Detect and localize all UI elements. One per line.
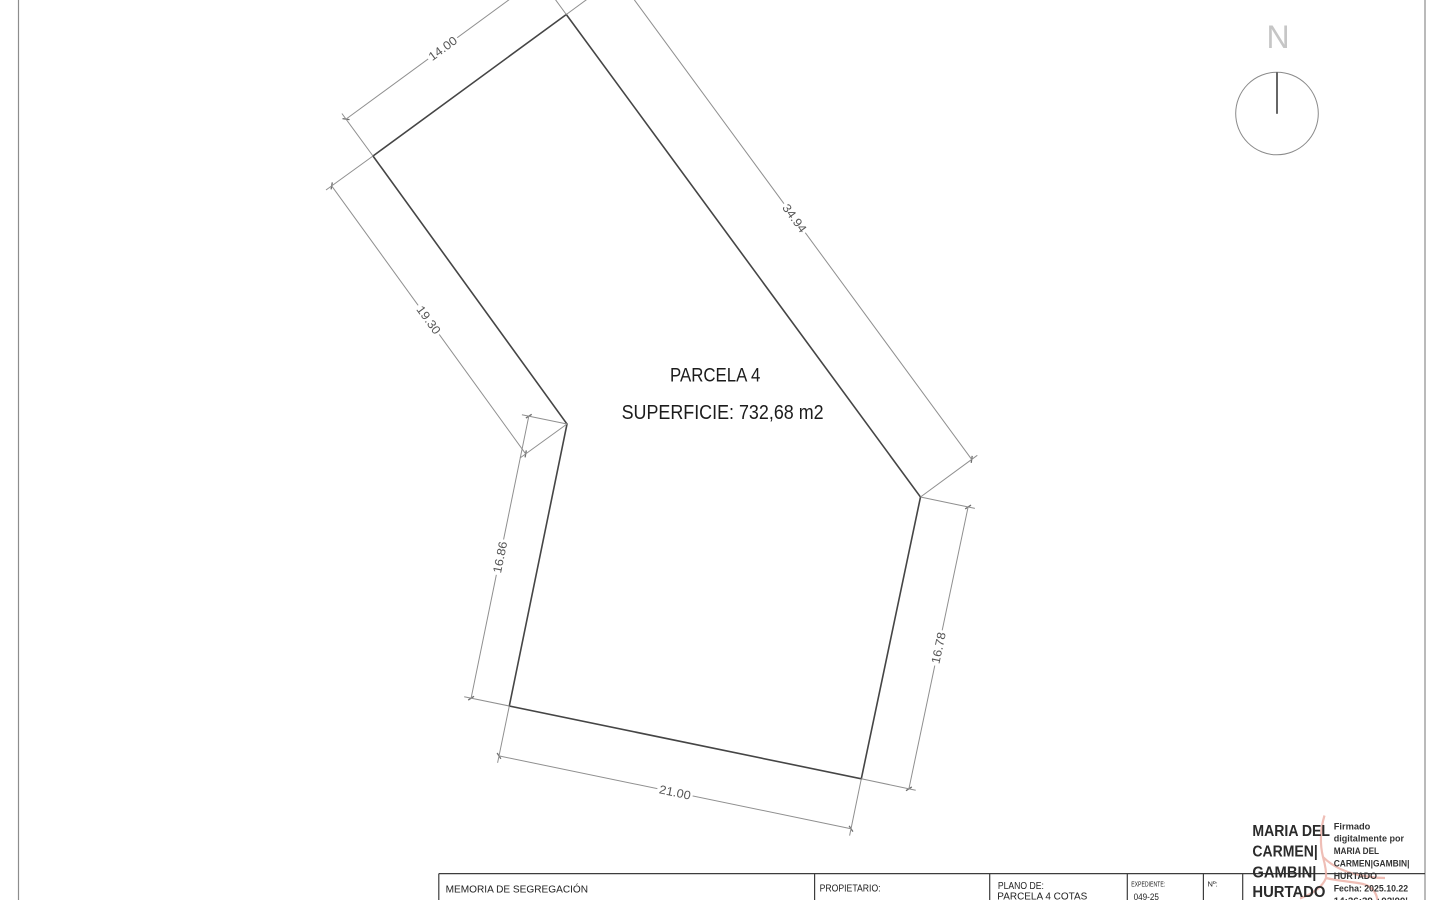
svg-text:MARIA DEL: MARIA DEL — [1334, 846, 1380, 856]
svg-text:16.86: 16.86 — [490, 540, 510, 574]
svg-text:PLANO DE:: PLANO DE: — [998, 881, 1044, 892]
svg-text:14:26:39 +02'00': 14:26:39 +02'00' — [1334, 896, 1408, 900]
svg-text:CARMEN|: CARMEN| — [1252, 843, 1317, 860]
svg-text:049-25: 049-25 — [1134, 892, 1159, 900]
svg-text:PARCELA 4: PARCELA 4 — [670, 365, 761, 387]
svg-text:MARIA DEL: MARIA DEL — [1252, 823, 1330, 840]
svg-text:HURTADO: HURTADO — [1252, 884, 1325, 900]
svg-text:16.78: 16.78 — [929, 631, 949, 666]
svg-text:N: N — [1266, 19, 1289, 55]
svg-text:PROPIETARIO:: PROPIETARIO: — [820, 883, 881, 894]
svg-text:GAMBIN|: GAMBIN| — [1252, 865, 1316, 882]
svg-text:PARCELA 4 COTAS: PARCELA 4 COTAS — [997, 892, 1087, 900]
svg-text:SUPERFICIE: 732,68 m2: SUPERFICIE: 732,68 m2 — [622, 402, 824, 424]
svg-text:HURTADO: HURTADO — [1334, 871, 1377, 881]
svg-text:MEMORIA DE SEGREGACIÓN: MEMORIA DE SEGREGACIÓN — [446, 882, 588, 895]
svg-text:21.00: 21.00 — [658, 782, 693, 802]
svg-text:digitalmente por: digitalmente por — [1334, 834, 1405, 844]
svg-text:Fecha: 2025.10.22: Fecha: 2025.10.22 — [1334, 884, 1408, 894]
svg-text:Firmado: Firmado — [1334, 821, 1371, 831]
svg-text:EXPEDIENTE:: EXPEDIENTE: — [1131, 880, 1165, 889]
svg-text:Nº:: Nº: — [1208, 880, 1218, 889]
svg-text:CARMEN|GAMBIN|: CARMEN|GAMBIN| — [1334, 859, 1410, 869]
